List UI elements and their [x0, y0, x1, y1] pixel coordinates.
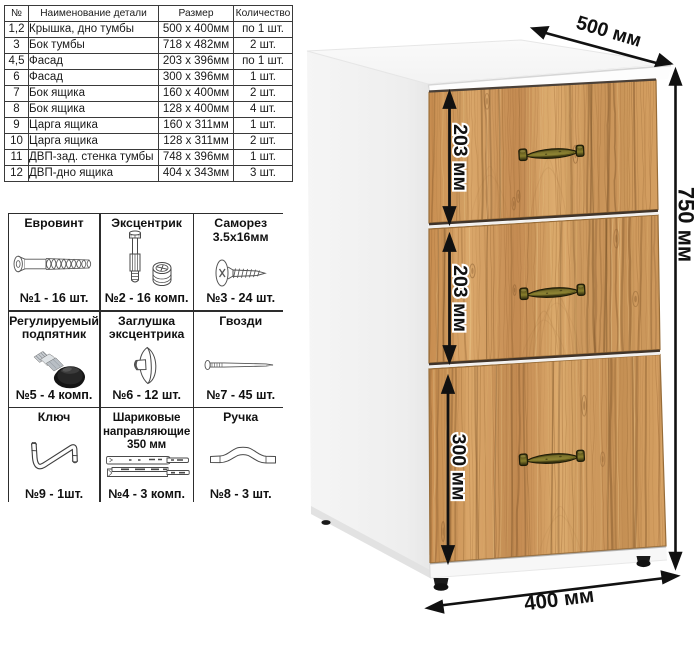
svg-text:400 мм: 400 мм: [523, 584, 596, 616]
svg-text:203 мм: 203 мм: [449, 265, 471, 332]
svg-text:500 мм: 500 мм: [574, 12, 644, 52]
svg-text:300 мм: 300 мм: [448, 434, 470, 501]
svg-text:750 мм: 750 мм: [674, 187, 699, 262]
svg-text:203 мм: 203 мм: [449, 124, 471, 191]
